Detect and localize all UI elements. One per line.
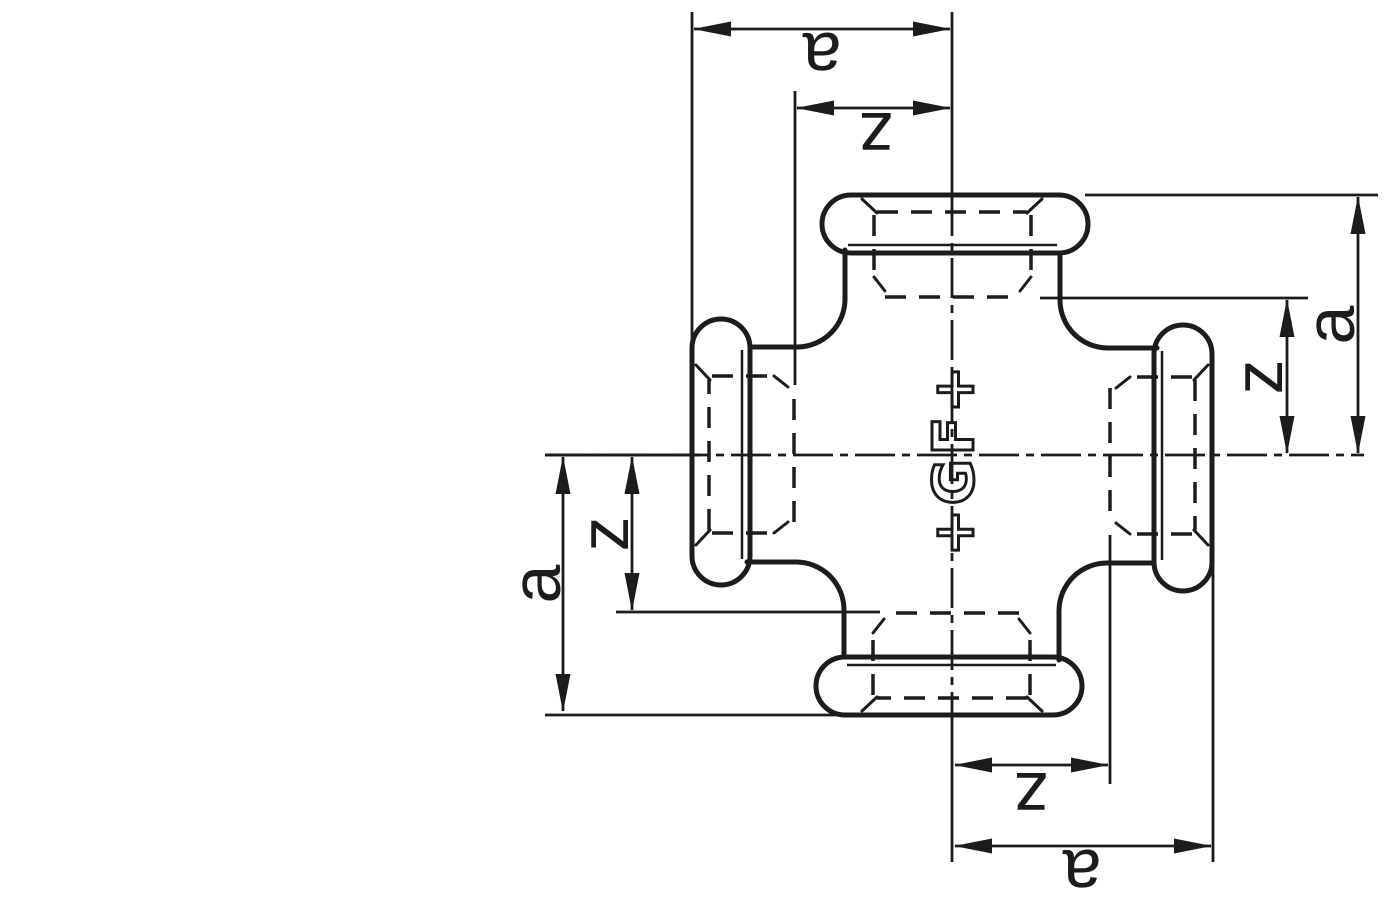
arrowhead-icon bbox=[954, 758, 992, 773]
dim-label-bottom-a: a bbox=[1062, 835, 1101, 900]
arrowhead-icon bbox=[913, 22, 951, 37]
arrowhead-icon bbox=[1280, 416, 1295, 454]
dim-label-right-a: a bbox=[1291, 305, 1369, 344]
dim-label-left-a: a bbox=[497, 564, 575, 603]
centerlines bbox=[545, 196, 1364, 714]
dim-label-top-a: a bbox=[802, 18, 841, 96]
socket-bottom bbox=[816, 563, 1153, 715]
arrowhead-icon bbox=[1351, 416, 1366, 454]
arrowhead-icon bbox=[913, 101, 951, 116]
arrowhead-icon bbox=[625, 456, 640, 494]
socket-right bbox=[1060, 254, 1212, 591]
arrowhead-icon bbox=[625, 573, 640, 611]
dim-label-right-z: z bbox=[1219, 360, 1297, 395]
dim-label-bottom-z: z bbox=[1014, 758, 1049, 836]
socket-top bbox=[751, 195, 1088, 347]
arrowhead-icon bbox=[954, 839, 992, 854]
arrowhead-icon bbox=[1174, 839, 1212, 854]
socket-neck-and-fillet bbox=[751, 250, 845, 347]
arrowhead-icon bbox=[693, 22, 731, 37]
arrowhead-icon bbox=[1071, 758, 1109, 773]
technical-drawing: +GF+ a z a z a z z a bbox=[0, 0, 1400, 900]
arrowhead-icon bbox=[556, 674, 571, 712]
arrowhead-icon bbox=[556, 456, 571, 494]
dim-label-left-z: z bbox=[565, 517, 643, 552]
drawing-canvas: +GF+ a z a z a z z a bbox=[0, 0, 1400, 900]
dim-label-top-z: z bbox=[859, 98, 894, 176]
arrowhead-icon bbox=[1351, 196, 1366, 234]
gf-logo: +GF+ bbox=[922, 362, 987, 556]
socket-left bbox=[692, 319, 844, 656]
arrowhead-icon bbox=[796, 101, 834, 116]
